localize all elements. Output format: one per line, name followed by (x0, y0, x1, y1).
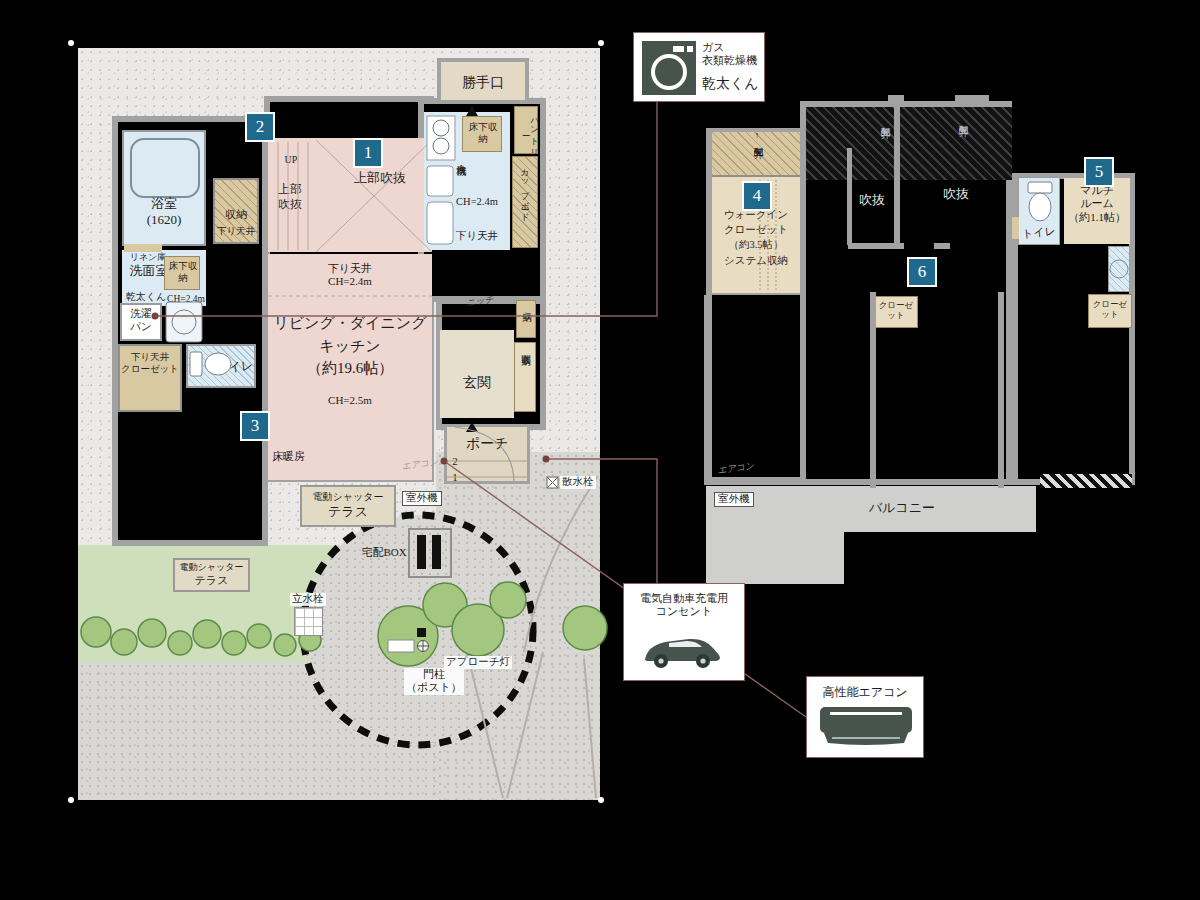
multi-room: マルチ ルーム （約1.1帖） (1064, 178, 1130, 244)
closet-right: クローゼット (1088, 294, 1132, 328)
sprinkler-label: 散水栓 (560, 476, 596, 489)
back-door-label: 勝手口 (441, 74, 525, 91)
floor-heating-label: 床暖房 (272, 450, 328, 463)
ldk-label: リビング・ダイニング キッチン （約19.6帖） (268, 312, 432, 380)
cupboard: カップボード (512, 156, 538, 248)
f2-roof-stub (888, 95, 904, 103)
wic-label: ウォークイン クローゼット （約3.5帖） システム収納 (712, 207, 800, 268)
terrace2-terrace-label: テラス (175, 574, 248, 587)
kanta-kun-label: 乾太くん (122, 291, 170, 303)
up-label: UP (276, 154, 306, 166)
f2-sloped-roof: 勾配天井 勾配天井 (806, 107, 1012, 180)
pantry-label: パントリー (522, 110, 539, 153)
f2-inner-wall (934, 243, 950, 249)
kitchen-underfloor-storage: 床下収納 (462, 116, 502, 152)
washroom-underfloor-storage: 床下収納 (164, 256, 200, 290)
washbasin-2f (1108, 246, 1130, 292)
toilet-2f-label: トイレ (1018, 224, 1059, 242)
entrance-storage: 玄関収納 (514, 342, 536, 412)
low-closet-label: 下り天井 クローゼット (120, 352, 180, 375)
outdoor-unit-2f-label: 室外機 (714, 492, 754, 507)
floor-plan-page: 勝手口 浴室 (1620) 収納 下り天井 UP 上部 吹抜 上部吹抜 床下収納… (0, 0, 1200, 900)
site-corner-mark (598, 797, 604, 803)
ldk: 下り天井 CH=2.4m リビング・ダイニング キッチン （約19.6帖） CH… (268, 254, 432, 480)
wic-sloped-strip: ↑ 勾配天井 (712, 132, 800, 177)
void-label-b: 吹抜 (936, 186, 976, 202)
delivery-box-door (432, 535, 441, 569)
f2-corridor-wall (998, 292, 1004, 488)
ev-car-icon (639, 628, 731, 672)
terrace1-terrace-label: テラス (302, 504, 394, 520)
pantry: パントリー (514, 106, 538, 154)
f2-bottom-wall (704, 477, 804, 485)
badge-4: 4 (742, 181, 772, 211)
aircon-callout: 高性能エアコン (806, 676, 924, 758)
tap-label: 立水栓 (290, 593, 326, 606)
ldk-ceiling-label: 下り天井 CH=2.4m (268, 262, 432, 289)
f2-inner-wall (894, 105, 900, 245)
toilet-1f-label: トイレ (213, 358, 256, 377)
badge-1: 1 (353, 138, 383, 168)
badge-6: 6 (907, 257, 937, 287)
dryer-name: 乾太くん (702, 75, 764, 92)
tap-icon (294, 607, 323, 636)
porch: ポーチ 2 1 (444, 424, 530, 484)
aircon-callout-label: 高性能エアコン (807, 685, 923, 700)
closet-right-label: クローゼット (1089, 299, 1131, 320)
ldk-ch-label: CH=2.5m (268, 394, 432, 407)
ev-callout: 電気自動車充電用 コンセント (623, 583, 745, 681)
laundry-pan: 洗濯 パン (120, 303, 162, 341)
delivery-box (408, 528, 452, 578)
entrance-storage-label: 玄関収納 (521, 347, 530, 351)
kitchen-underfloor-label: 床下収納 (465, 122, 501, 145)
kitchen: 床下収納 食洗機 CH=2.4m 下り天井 (424, 112, 510, 250)
f2-roof-stub (955, 95, 989, 103)
f2-inner-wall (847, 148, 852, 245)
void-main-label: 上部吹抜 (330, 170, 430, 186)
f2-inner-wall (848, 243, 904, 249)
back-door-landing: 勝手口 (437, 58, 529, 104)
aircon-2f-label: エアコン (711, 460, 760, 478)
porch-label: ポーチ (447, 435, 527, 452)
hall-storage-label: 収納 (522, 305, 531, 307)
ac-unit-icon (820, 707, 912, 747)
multi-room-label: マルチ ルーム （約1.1帖） (1064, 184, 1130, 224)
sloped-ceiling-label-b: 勾配天井 (958, 117, 968, 121)
stair-void: UP 上部 吹抜 上部吹抜 (268, 138, 432, 252)
entrance-hall: 玄関 (440, 330, 514, 418)
toilet-2f-shelf (1012, 217, 1019, 239)
badge-2: 2 (245, 112, 275, 142)
laundry-pan-label: 洗濯 パン (122, 308, 160, 334)
sloped-ceiling-label-a: 勾配天井 (880, 119, 890, 123)
ev-label: 電気自動車充電用 コンセント (624, 592, 744, 619)
awning-strip (1040, 474, 1132, 488)
bathroom-label: 浴室 (1620) (124, 196, 204, 228)
site-corner-mark (68, 797, 74, 803)
shutter-terrace-2: 電動シャッター テラス (173, 558, 250, 592)
f2-left-wall (704, 295, 712, 485)
shutter-terrace-1: 電動シャッター テラス (300, 485, 396, 527)
sloped-ceiling-label-wic: 勾配天井 (753, 139, 763, 143)
linen-shelf (124, 244, 162, 252)
hall-storage: 収納 (516, 300, 536, 338)
porch-step-2: 2 (449, 455, 461, 468)
balcony-step (706, 532, 844, 584)
dryer-callout: ガス 衣類乾燥機 乾太くん (633, 32, 765, 102)
washroom-underfloor-label: 床下収納 (167, 261, 199, 284)
washroom-ch-label: CH=2.4m (164, 294, 208, 306)
kitchen-ceiling-label: 下り天井 (444, 230, 510, 243)
entrance-label: 玄関 (440, 374, 514, 391)
badge-5: 5 (1084, 157, 1114, 187)
kitchen-ch-label: CH=2.4m (444, 196, 510, 209)
terrace1-shutter-label: 電動シャッター (302, 491, 394, 503)
terrace2-shutter-label: 電動シャッター (175, 562, 248, 573)
closet-center: クローゼット (874, 296, 918, 328)
stair-storage-label: 収納 (215, 208, 257, 221)
porch-step-1: 1 (449, 471, 461, 484)
bathroom: 浴室 (1620) (122, 130, 206, 246)
badge-3: 3 (240, 411, 270, 441)
dryer-title: ガス 衣類乾燥機 (702, 41, 764, 68)
approach-light-label: アプローチ灯 (444, 656, 512, 669)
toilet-room-1f: トイレ (186, 344, 256, 388)
void-label-a: 吹抜 (852, 192, 892, 208)
balcony-label: バルコニー (842, 500, 962, 516)
low-ceiling-closet: 下り天井 クローゼット (118, 344, 182, 412)
dishwasher-label: 食洗機 (456, 156, 466, 159)
gate-post-label: 門柱 （ポスト） (404, 668, 464, 695)
closet-center-label: クローゼット (875, 300, 917, 321)
gas-dryer-icon (642, 41, 696, 95)
stair-storage-sub-label: 下り天井 (213, 226, 259, 238)
outdoor-unit-1f-label: 室外機 (402, 491, 442, 506)
delivery-box-label: 宅配BOX (358, 546, 410, 559)
void-side-label: 上部 吹抜 (270, 182, 310, 211)
delivery-box-door (417, 535, 426, 569)
cupboard-label: カップボード (521, 163, 530, 217)
bathtub-icon (130, 138, 200, 198)
balcony: バルコニー (706, 486, 1036, 532)
toilet-room-2f: トイレ (1018, 177, 1060, 245)
site-corner-mark (68, 40, 74, 46)
f2-corridor-wall (870, 292, 876, 488)
site-corner-mark (598, 40, 604, 46)
